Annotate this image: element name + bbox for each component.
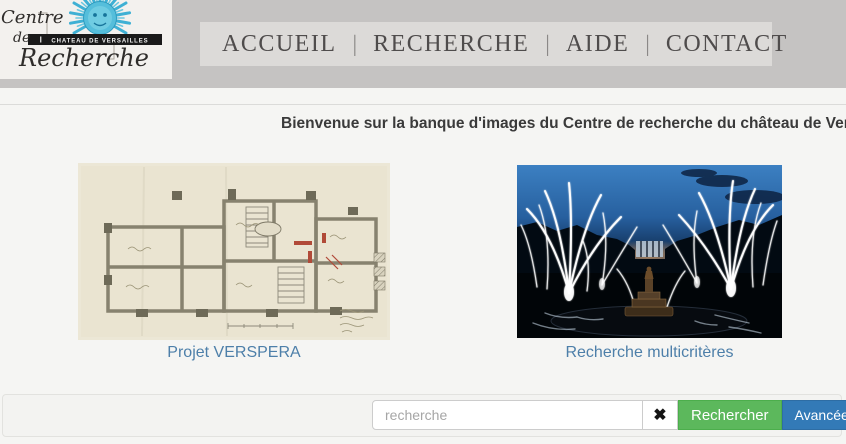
advanced-search-button[interactable]: Avancée [782, 400, 846, 430]
nav-item-aide[interactable]: AIDE [566, 31, 629, 58]
clear-search-button[interactable]: ✖ [643, 400, 678, 430]
page: CHATEAU DE VERSAILLES Centre de Recherch… [0, 0, 846, 444]
link-projet-verspera[interactable]: Projet VERSPERA [78, 344, 390, 362]
multicriteria-search-image[interactable] [517, 165, 782, 338]
logo-word-recherche: Recherche [18, 44, 149, 72]
header-band: CHATEAU DE VERSAILLES Centre de Recherch… [0, 0, 846, 88]
search-group: ✖ Rechercher Avancée [372, 400, 846, 430]
nav-separator: | [645, 31, 650, 57]
nav-separator: | [353, 31, 358, 57]
header-divider [0, 104, 846, 105]
main-nav: ACCUEIL | RECHERCHE | AIDE | CONTACT [200, 22, 772, 66]
nav-item-accueil[interactable]: ACCUEIL [222, 31, 337, 58]
nav-item-contact[interactable]: CONTACT [666, 31, 788, 58]
versailles-sunburst-logo-icon: CHATEAU DE VERSAILLES Centre de Recherch… [0, 0, 172, 79]
nav-separator: | [545, 31, 550, 57]
site-logo[interactable]: CHATEAU DE VERSAILLES Centre de Recherch… [0, 0, 172, 79]
search-submit-button[interactable]: Rechercher [678, 400, 782, 430]
search-input[interactable] [372, 400, 643, 430]
verspera-plan-image[interactable] [78, 163, 390, 340]
nav-item-recherche[interactable]: RECHERCHE [373, 31, 529, 58]
link-recherche-multicriteres[interactable]: Recherche multicritères [517, 344, 782, 362]
page-title: Bienvenue sur la banque d'images du Cent… [281, 115, 846, 133]
logo-word-centre: Centre [1, 7, 64, 28]
clear-icon: ✖ [653, 405, 666, 425]
